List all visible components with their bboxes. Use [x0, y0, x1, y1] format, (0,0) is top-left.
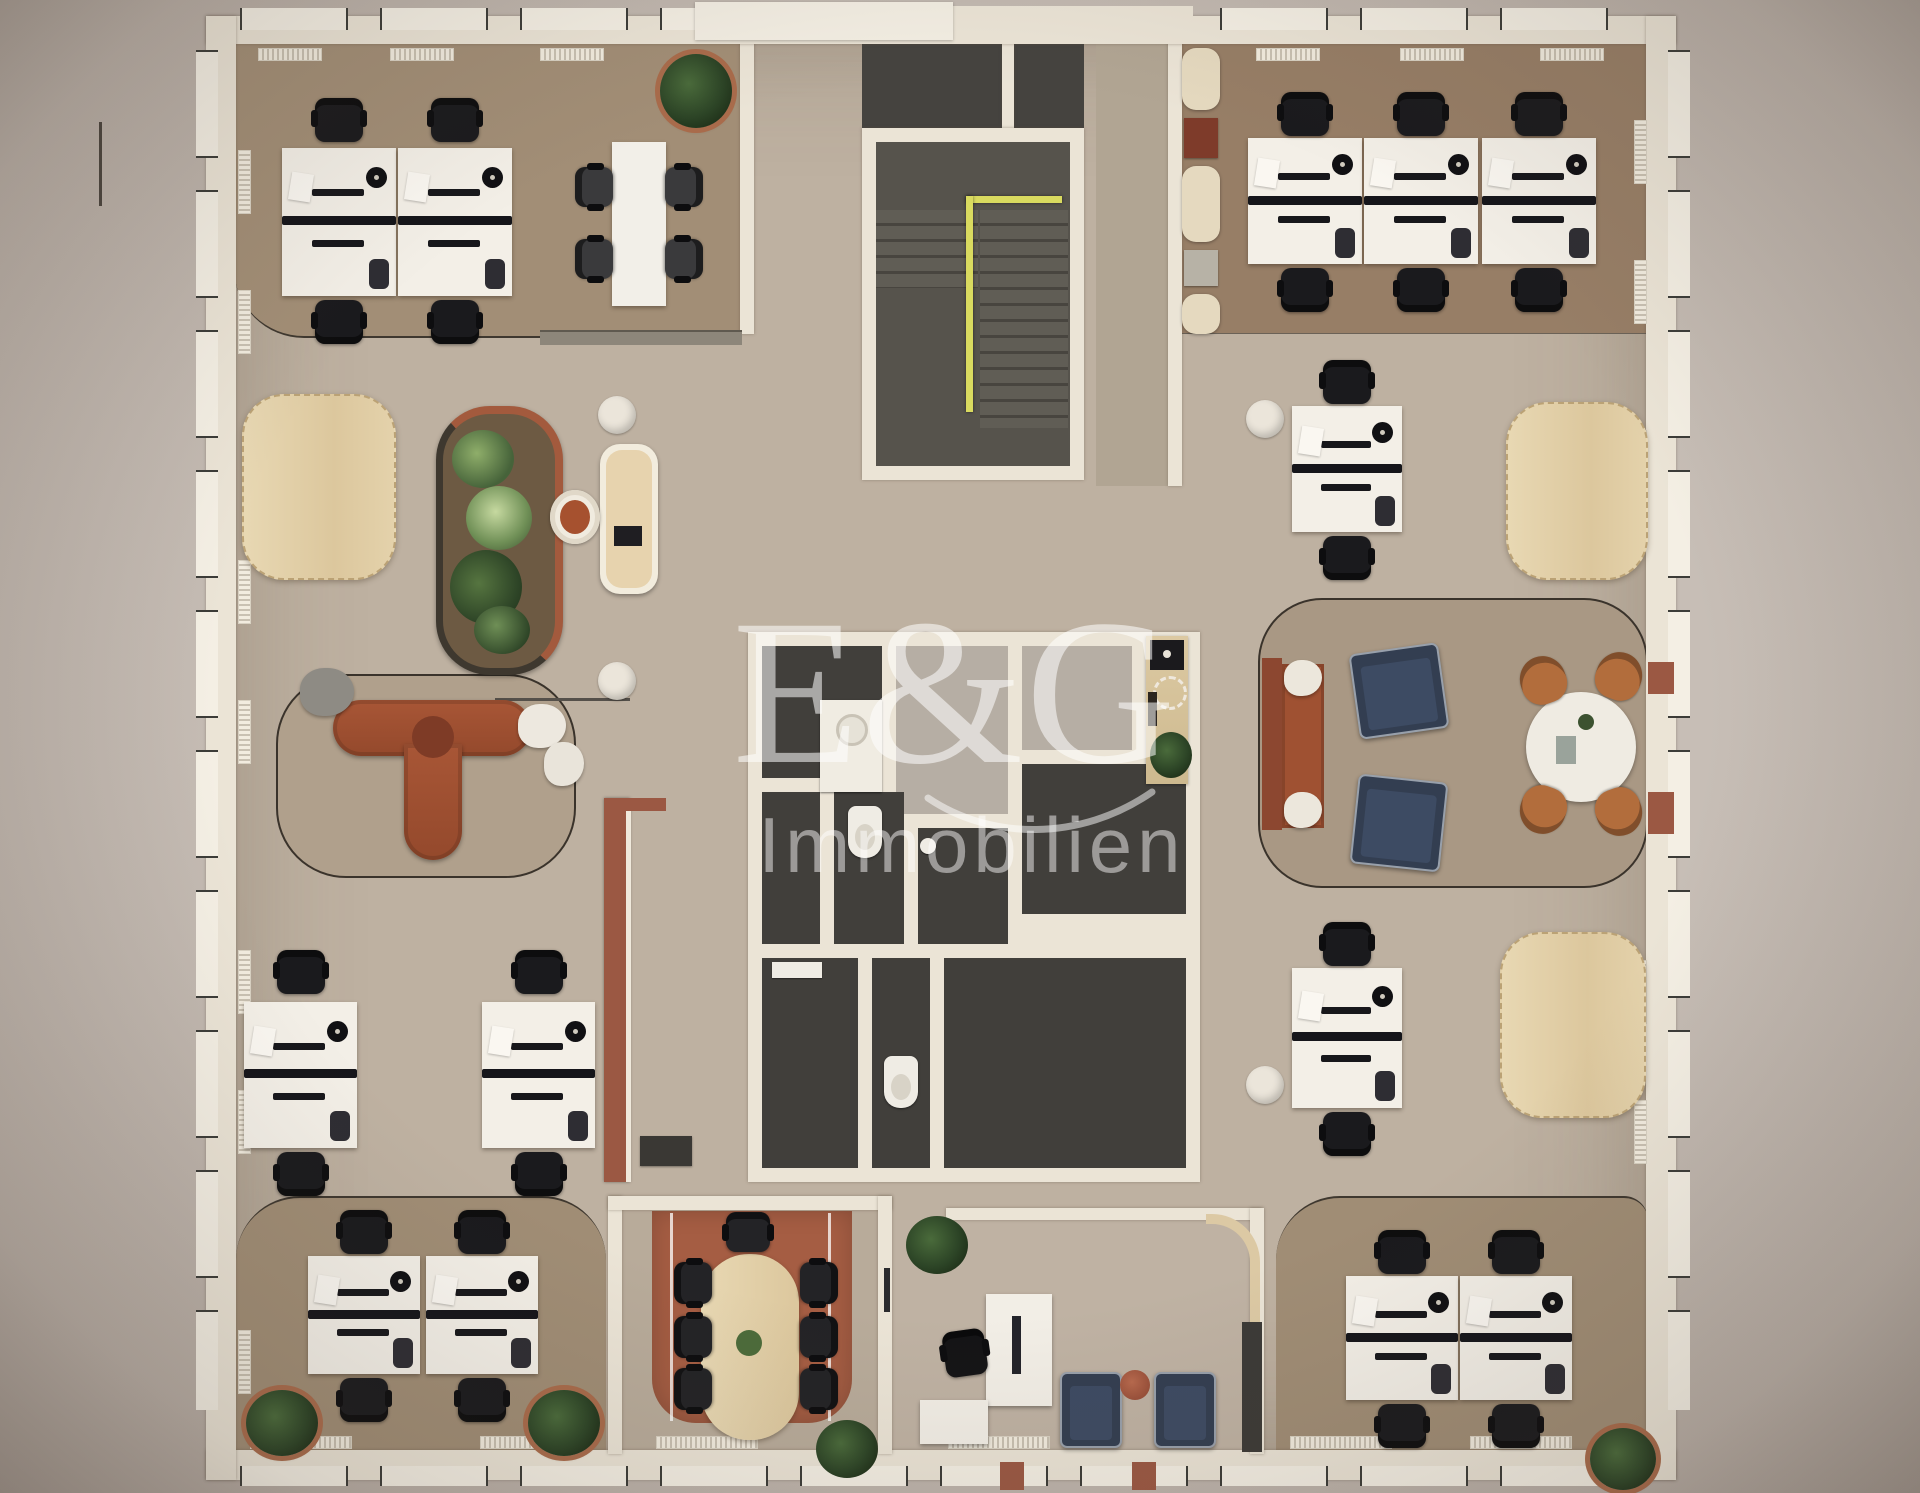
radiator: [238, 290, 251, 354]
potted-plant: [528, 1390, 600, 1456]
meeting-chair: [575, 239, 613, 279]
office-chair: [515, 1152, 563, 1196]
office-chair: [277, 1152, 325, 1196]
booth-bench: [1182, 48, 1220, 110]
meeting-room-east-wall: [878, 1196, 892, 1454]
office-chair: [1378, 1404, 1426, 1448]
potted-plant: [816, 1420, 878, 1478]
planter-foliage: [474, 606, 530, 654]
table-plant: [1578, 714, 1594, 730]
office-chair: [1323, 536, 1371, 580]
booth-table: [1184, 250, 1218, 286]
double-workstation: [1364, 138, 1478, 264]
office-chair: [1323, 360, 1371, 404]
meeting-chair: [800, 1262, 838, 1304]
wood-lounge-table: [1506, 402, 1648, 580]
window-band-west: [196, 50, 218, 1410]
rust-wall-mark: [1648, 662, 1674, 694]
watermark-logo-text: E&G: [732, 588, 1177, 796]
radiator: [238, 1330, 251, 1394]
double-workstation: [1292, 968, 1402, 1108]
double-workstation: [398, 148, 512, 296]
double-workstation: [1482, 138, 1596, 264]
office-nw-east-wall: [740, 42, 754, 334]
radiator: [1400, 48, 1464, 61]
wc-stall-3-floor: [762, 958, 858, 1168]
entrance-wall-section: [953, 6, 1193, 40]
reception-chair: [941, 1327, 989, 1378]
office-chair: [1492, 1230, 1540, 1274]
office-chair: [1515, 92, 1563, 136]
rust-wall-mark: [1648, 792, 1674, 834]
floor-plan-scene: E&G Immobilien: [0, 0, 1920, 1493]
admin-chair-seat: [560, 500, 590, 534]
rust-wall-mark: [1132, 1462, 1156, 1490]
booth-table: [1184, 118, 1218, 158]
booth-bench: [1182, 166, 1220, 242]
office-chair: [1378, 1230, 1426, 1274]
reception-desk-return: [920, 1400, 988, 1444]
wc-large-room-floor: [944, 958, 1186, 1168]
meeting-chair: [726, 1212, 770, 1252]
radiator: [1634, 1100, 1647, 1164]
lounge-sofa-back: [1262, 658, 1282, 830]
double-workstation: [482, 1002, 595, 1148]
radiator: [390, 48, 454, 61]
round-pouf: [598, 662, 636, 700]
office-chair: [340, 1378, 388, 1422]
entrance-vestibule-floor: [862, 36, 1084, 128]
admin-desk-top: [606, 450, 652, 588]
radiator: [1634, 260, 1647, 324]
cabinet: [1242, 1322, 1262, 1452]
meeting-chair: [674, 1368, 712, 1410]
office-chair: [1323, 1112, 1371, 1156]
meeting-chair: [575, 167, 613, 207]
office-chair: [340, 1210, 388, 1254]
corridor-console: [640, 1136, 692, 1166]
radiator: [238, 560, 251, 624]
wood-lounge-table: [242, 394, 396, 580]
radiator: [1634, 120, 1647, 184]
table-plant: [736, 1330, 762, 1356]
navy-armchair: [1060, 1372, 1122, 1448]
office-chair: [1515, 268, 1563, 312]
double-workstation: [1248, 138, 1362, 264]
rust-wall-mark: [1000, 1462, 1024, 1490]
office-chair: [431, 300, 479, 344]
window-band-south: [240, 1466, 1620, 1486]
office-chair: [277, 950, 325, 994]
office-chair: [1323, 922, 1371, 966]
meeting-chair: [674, 1316, 712, 1358]
stair-railing-horizontal: [966, 196, 1062, 203]
office-chair: [458, 1210, 506, 1254]
monitor: [1012, 1316, 1021, 1374]
office-chair: [458, 1378, 506, 1422]
washbasin: [772, 962, 822, 978]
navy-armchair: [1348, 642, 1449, 740]
meeting-chair: [665, 239, 703, 279]
office-chair: [1281, 268, 1329, 312]
double-workstation: [308, 1256, 420, 1374]
double-workstation: [1346, 1276, 1458, 1400]
toilet-2: [884, 1056, 918, 1108]
team-table: [612, 142, 666, 306]
office-chair: [315, 300, 363, 344]
meeting-chair: [800, 1316, 838, 1358]
stairs-flight: [980, 210, 1068, 428]
radiator: [238, 700, 251, 764]
meeting-chair: [800, 1368, 838, 1410]
wall-screen: [884, 1268, 890, 1312]
sideboard: [540, 330, 742, 345]
double-workstation: [244, 1002, 357, 1148]
round-pouf: [1246, 400, 1284, 438]
double-workstation: [426, 1256, 538, 1374]
window-band-east: [1668, 50, 1690, 1410]
meeting-chair: [674, 1262, 712, 1304]
radiator: [1256, 48, 1320, 61]
entrance-canopy: [695, 2, 953, 40]
planter-foliage: [452, 430, 514, 488]
potted-plant: [660, 54, 732, 128]
core-corridor-floor: [1096, 42, 1168, 486]
corridor-east-wall: [1168, 42, 1182, 486]
round-side-table: [1120, 1370, 1150, 1400]
floor-light-strip: [670, 1213, 673, 1421]
meeting-room-west-wall: [608, 1196, 622, 1454]
planter-foliage: [466, 486, 532, 550]
meeting-chair: [665, 167, 703, 207]
office-chair: [315, 98, 363, 142]
office-chair: [1397, 268, 1445, 312]
navy-armchair: [1154, 1372, 1216, 1448]
navy-armchair: [1350, 774, 1449, 873]
office-chair: [1492, 1404, 1540, 1448]
potted-plant: [246, 1390, 318, 1456]
radiator: [1540, 48, 1604, 61]
double-workstation: [1460, 1276, 1572, 1400]
meeting-room-north-wall: [608, 1196, 892, 1210]
potted-plant: [906, 1216, 968, 1274]
round-pouf: [1246, 1066, 1284, 1104]
office-chair: [431, 98, 479, 142]
rust-wall-edge: [626, 798, 631, 1182]
booth-bench: [1182, 294, 1220, 334]
office-chair: [1397, 92, 1445, 136]
double-workstation: [1292, 406, 1402, 532]
radiator: [1290, 1436, 1392, 1449]
rust-wall-return: [604, 798, 666, 811]
radiator: [258, 48, 322, 61]
radiator: [238, 150, 251, 214]
office-chair: [515, 950, 563, 994]
round-pouf: [598, 396, 636, 434]
sofa-center-cushion: [412, 716, 454, 758]
radiator: [540, 48, 604, 61]
scale-mark: [99, 122, 102, 206]
tablet-on-table: [1556, 736, 1576, 764]
vestibule-divider-wall: [1002, 36, 1014, 128]
modular-sofa-stem: [404, 744, 462, 860]
wood-lounge-table: [1500, 932, 1646, 1118]
stair-railing-vertical: [966, 196, 973, 412]
laptop: [614, 526, 642, 546]
double-workstation: [282, 148, 396, 296]
potted-plant: [1590, 1428, 1656, 1490]
stairs-upper-flight: [876, 210, 978, 288]
watermark-subtitle-text: Immobilien: [758, 806, 1185, 884]
office-chair: [1281, 92, 1329, 136]
